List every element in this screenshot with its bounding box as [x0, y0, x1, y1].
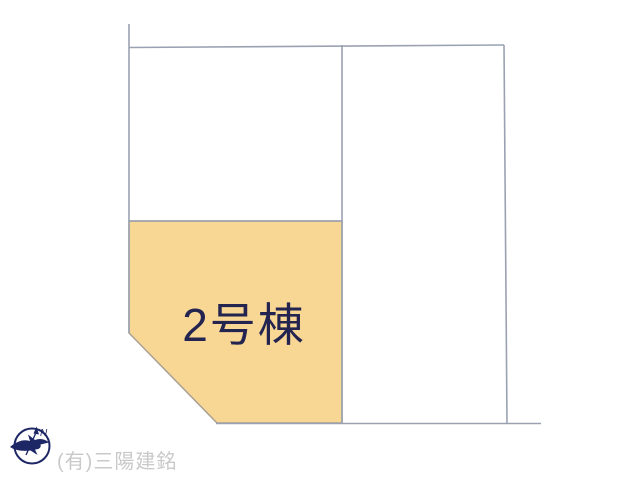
- lot-label: 2号棟: [182, 299, 306, 351]
- boundary-line-top-horizontal: [129, 45, 504, 48]
- company-watermark: (有)三陽建銘: [57, 450, 177, 473]
- compass-icon: N: [10, 427, 50, 464]
- lot-plan-canvas: 2号棟 N (有)三陽建銘: [0, 0, 640, 480]
- compass-north-label: N: [40, 428, 48, 439]
- boundary-line-right-vertical: [504, 45, 507, 423]
- lot-plan-drawing: 2号棟 N (有)三陽建銘: [0, 0, 640, 480]
